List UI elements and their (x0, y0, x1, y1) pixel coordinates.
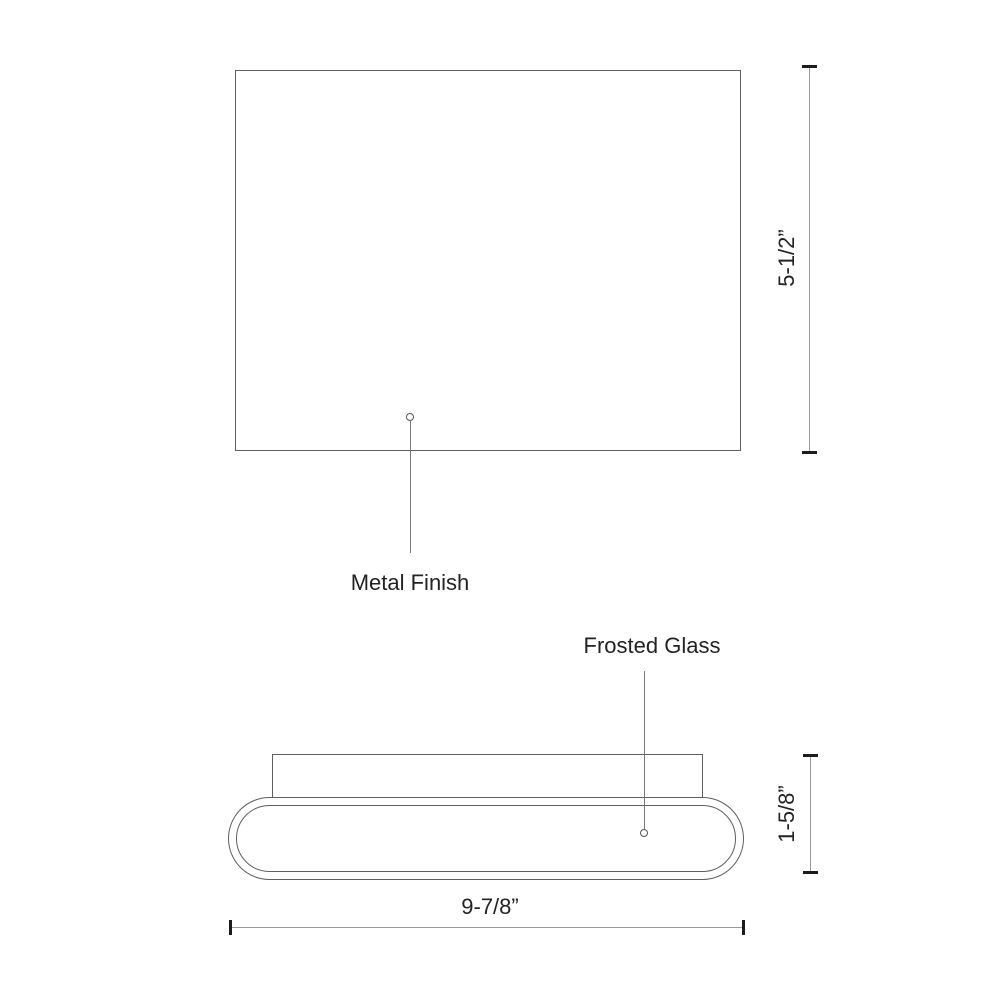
depth-dimension-label: 1-5/8” (774, 785, 800, 842)
metal-finish-label: Metal Finish (351, 570, 470, 596)
height-dimension-tick-bottom (802, 451, 817, 454)
height-dimension-line (809, 66, 810, 453)
height-dimension-label: 5-1/2” (774, 229, 800, 286)
side-view-mounting-plate (272, 754, 703, 798)
frosted-glass-label: Frosted Glass (584, 633, 721, 659)
front-view-rectangle (235, 70, 741, 451)
width-dimension-tick-right (742, 920, 745, 935)
depth-dimension-line (810, 755, 811, 873)
metal-finish-callout-dot (406, 413, 414, 421)
width-dimension-label: 9-7/8” (461, 894, 518, 920)
side-view-inner-capsule (236, 805, 736, 872)
height-dimension-tick-top (802, 65, 817, 68)
width-dimension-line (230, 927, 744, 928)
width-dimension-tick-left (229, 920, 232, 935)
metal-finish-leader-line (410, 421, 411, 553)
depth-dimension-tick-bottom (803, 871, 818, 874)
dimension-drawing-canvas: Metal Finish 5-1/2” Frosted Glass 1-5/8”… (0, 0, 1000, 1000)
depth-dimension-tick-top (803, 754, 818, 757)
